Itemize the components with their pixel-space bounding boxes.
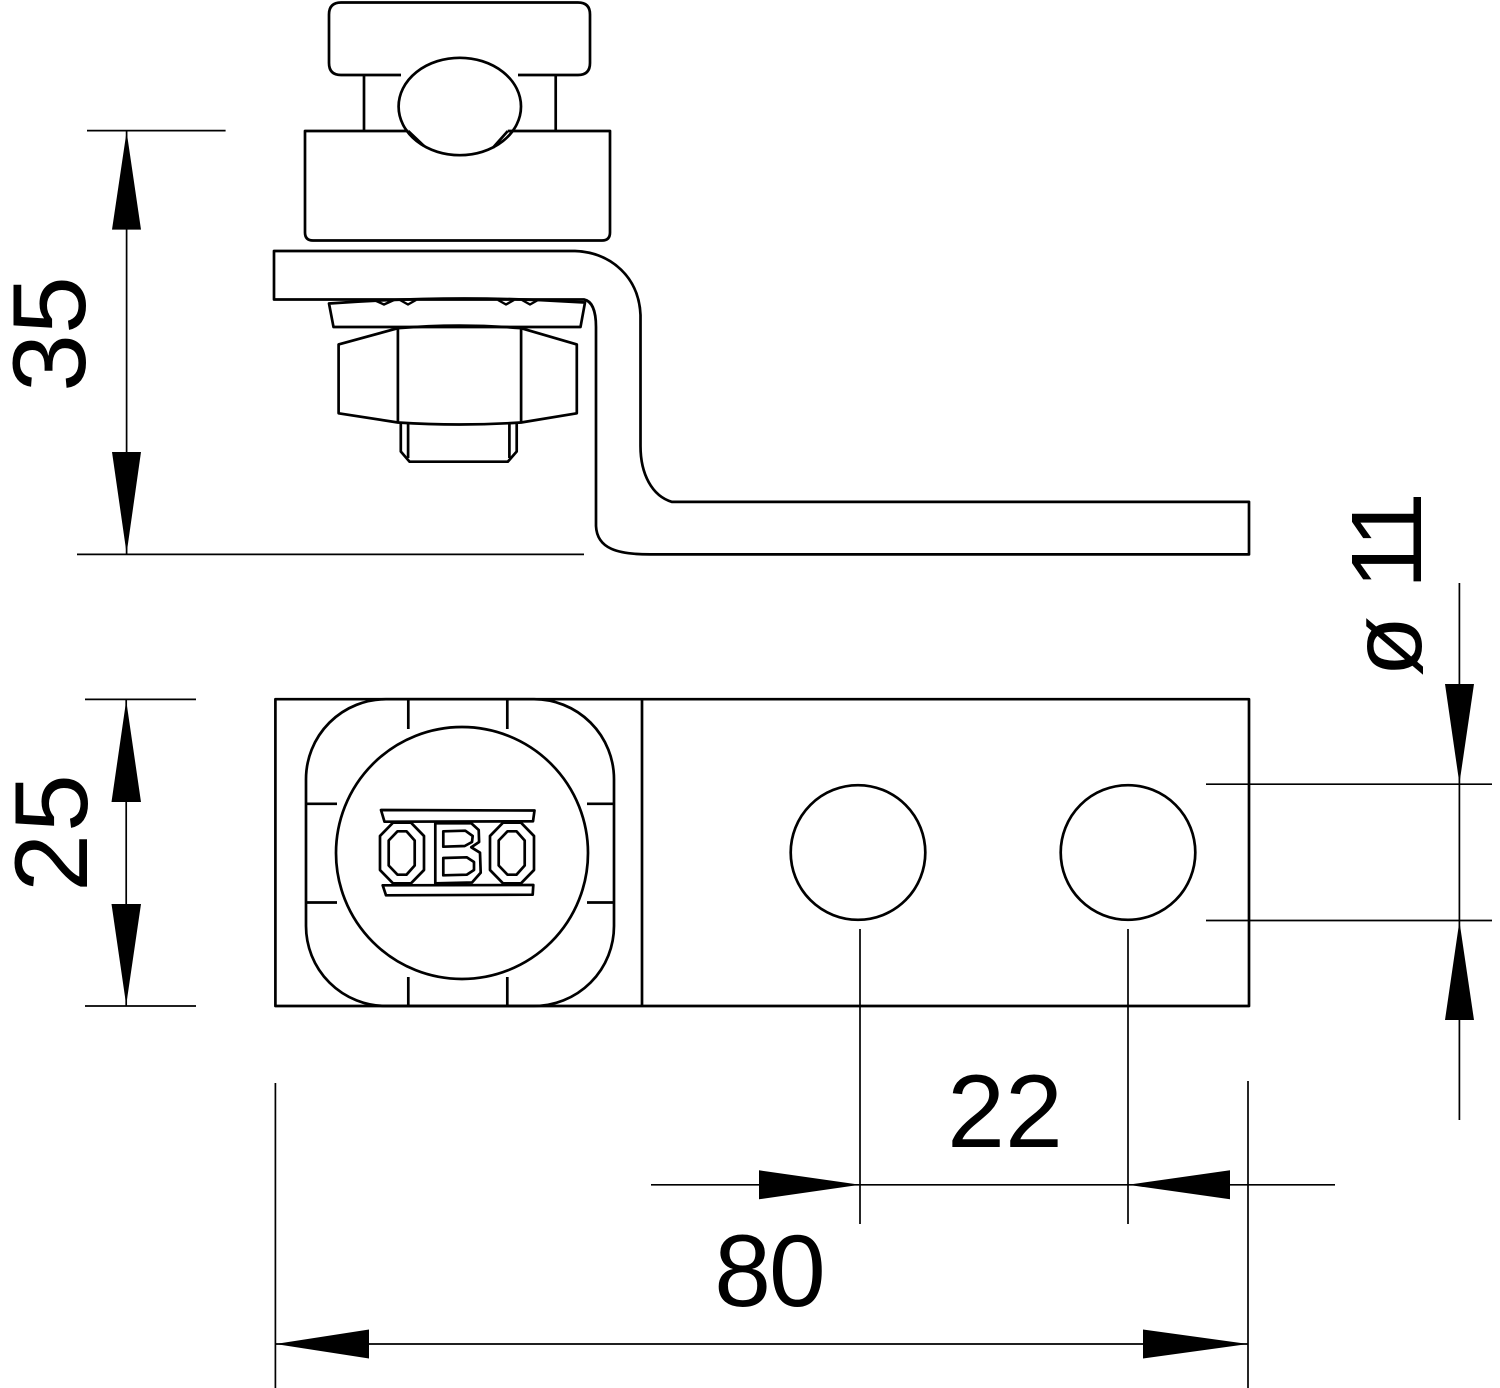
svg-text:80: 80 (714, 1214, 823, 1328)
svg-text:22: 22 (947, 1054, 1063, 1170)
svg-text:35: 35 (0, 276, 108, 392)
svg-text:ø 11: ø 11 (1331, 497, 1443, 677)
svg-text:25: 25 (0, 772, 110, 892)
